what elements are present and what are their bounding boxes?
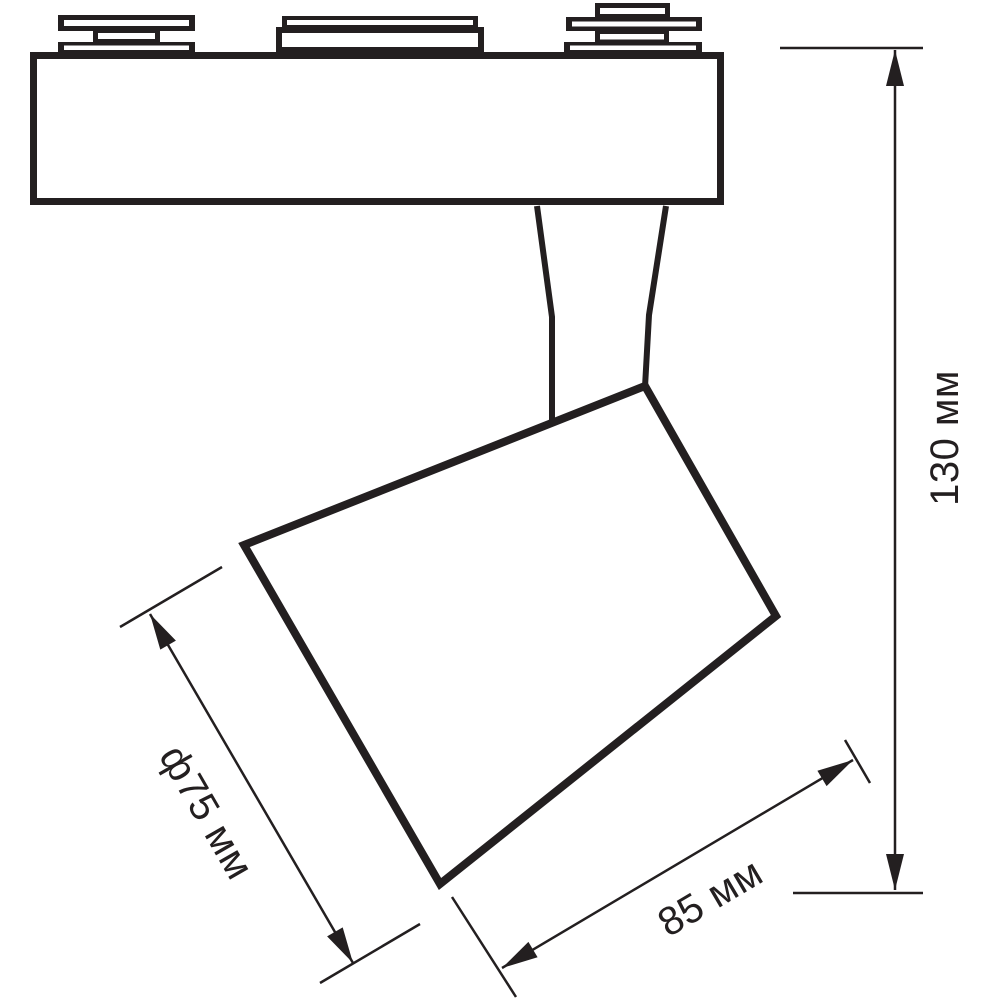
contact-base-slot	[282, 33, 478, 47]
contact-bar-slot	[287, 20, 473, 25]
drawing-canvas: ф75 мм 85 мм 130 мм	[0, 0, 1000, 1000]
contact-bar-slot	[572, 22, 696, 27]
contact-bar-slot	[64, 20, 189, 26]
contact-neck-slot	[600, 34, 664, 40]
contact-base-slot	[64, 46, 189, 51]
adapter-housing	[34, 56, 721, 202]
technical-drawing: ф75 мм 85 мм 130 мм	[0, 0, 1000, 1000]
track-contact-middle	[276, 16, 484, 53]
contact-top-lug-slot	[600, 8, 665, 14]
contact-base-slot	[570, 46, 696, 51]
dimension-label-height: 130 мм	[923, 370, 967, 506]
contact-neck-slot	[98, 33, 155, 39]
track-adapter	[34, 3, 721, 202]
